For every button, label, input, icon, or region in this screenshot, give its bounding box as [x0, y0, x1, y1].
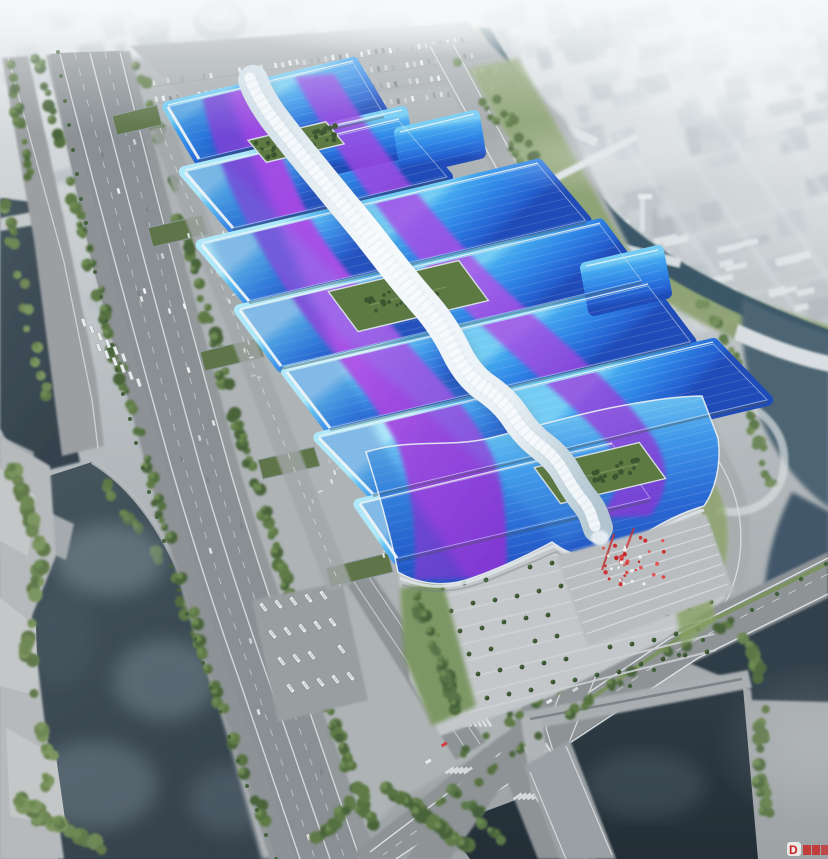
svg-text:D: D: [789, 843, 798, 857]
